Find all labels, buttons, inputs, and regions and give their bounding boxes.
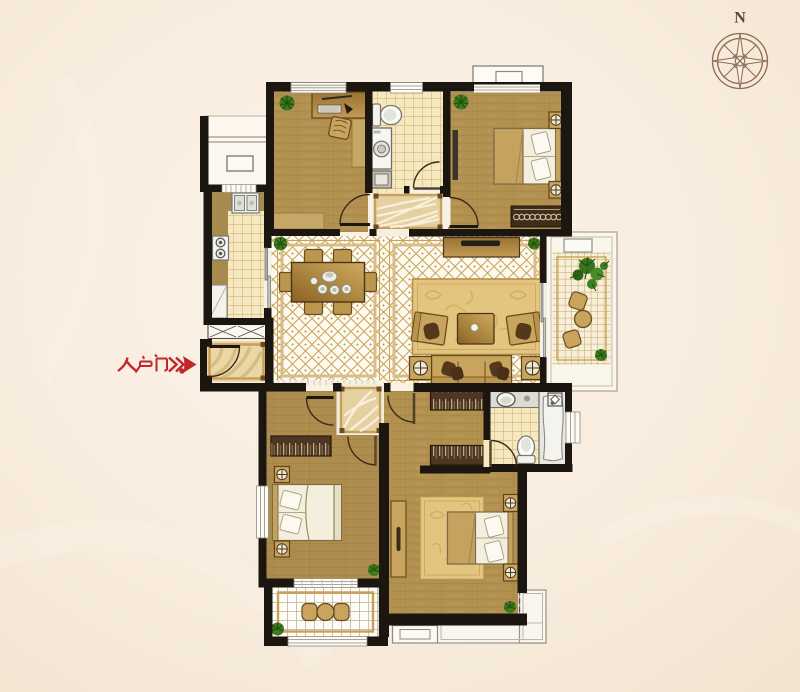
svg-text:N: N xyxy=(734,10,746,27)
